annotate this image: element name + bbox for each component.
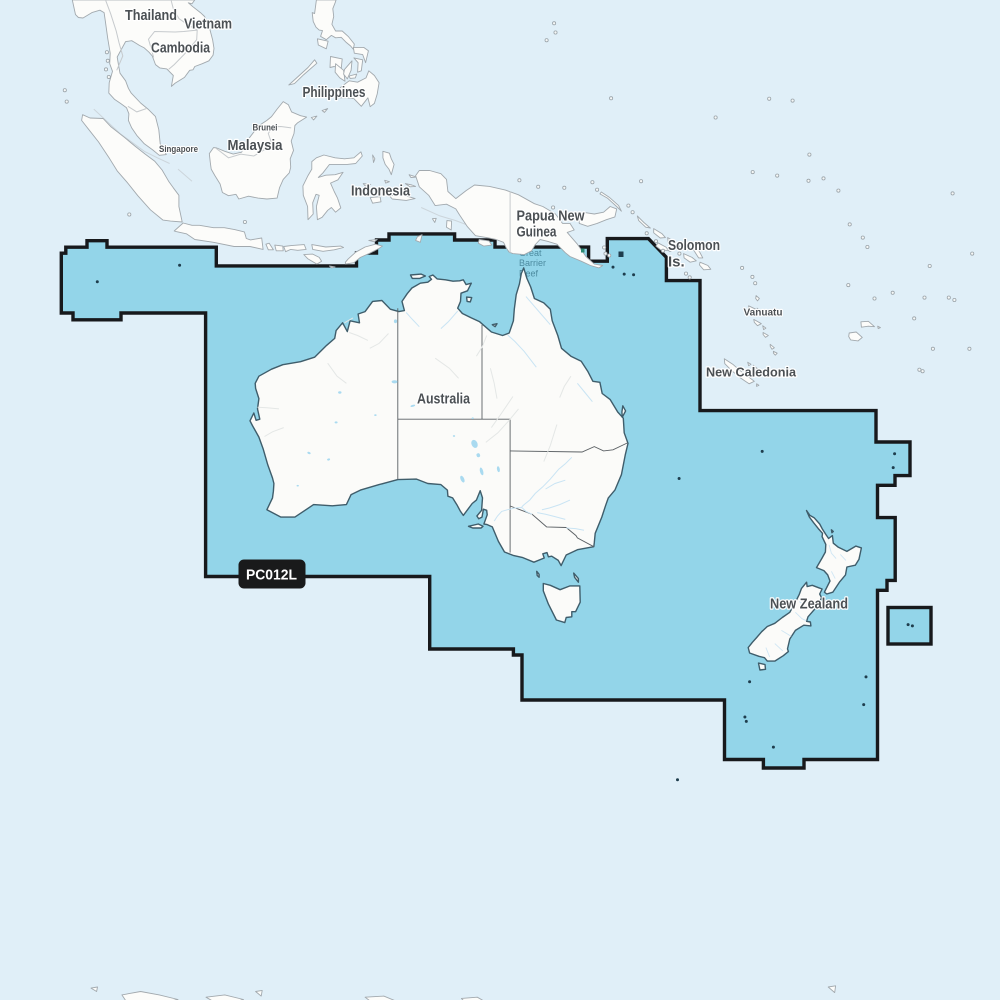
- svg-text:Thailand: Thailand: [125, 7, 177, 24]
- svg-text:Brunei: Brunei: [253, 123, 278, 134]
- svg-text:Is.: Is.: [668, 254, 685, 271]
- svg-text:Solomon: Solomon: [668, 237, 720, 254]
- svg-text:Singapore: Singapore: [159, 144, 198, 155]
- svg-text:New Zealand: New Zealand: [770, 596, 848, 613]
- svg-text:Philippines: Philippines: [303, 84, 366, 101]
- svg-text:Guinea: Guinea: [517, 224, 558, 241]
- svg-text:PC012L: PC012L: [246, 568, 297, 584]
- svg-text:Barrier: Barrier: [519, 258, 546, 268]
- svg-text:Papua New: Papua New: [517, 208, 585, 225]
- svg-text:Vanuatu: Vanuatu: [744, 307, 783, 319]
- svg-text:Australia: Australia: [417, 391, 471, 408]
- svg-text:Vietnam: Vietnam: [184, 16, 232, 33]
- svg-text:New Caledonia: New Caledonia: [706, 365, 797, 380]
- svg-text:Indonesia: Indonesia: [351, 183, 411, 200]
- svg-text:Cambodia: Cambodia: [151, 40, 211, 57]
- svg-text:Malaysia: Malaysia: [228, 137, 284, 154]
